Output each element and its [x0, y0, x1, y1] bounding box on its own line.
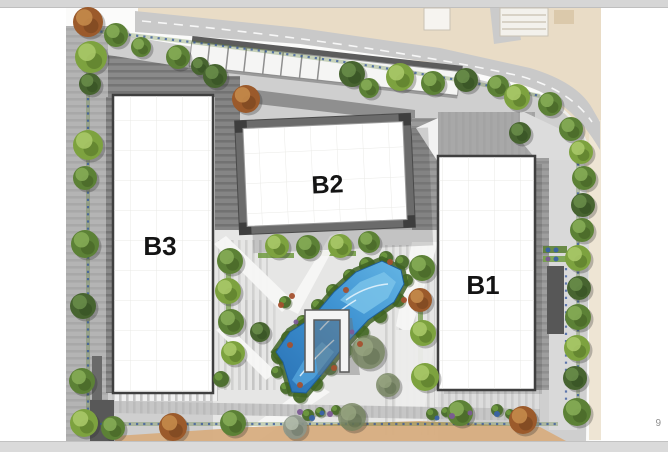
building-label-b2: B2	[311, 170, 344, 199]
offsite-building	[424, 8, 450, 30]
building-b3: B3	[106, 95, 213, 393]
page-number: 9	[655, 418, 661, 429]
building-b1: B1	[438, 156, 542, 394]
site-plan-graphic: B3 B2 B1	[0, 0, 668, 452]
building-label-b1: B1	[466, 270, 499, 300]
building-b2: B2	[235, 113, 416, 235]
site-plan-image: B3 B2 B1	[0, 0, 668, 452]
pavilion	[305, 310, 360, 375]
slide: B3 B2 B1	[0, 0, 668, 452]
building-label-b3: B3	[143, 231, 176, 261]
slide-edge-bottom	[0, 441, 668, 452]
offsite-block	[554, 10, 574, 24]
east-sidewalk	[589, 120, 601, 440]
